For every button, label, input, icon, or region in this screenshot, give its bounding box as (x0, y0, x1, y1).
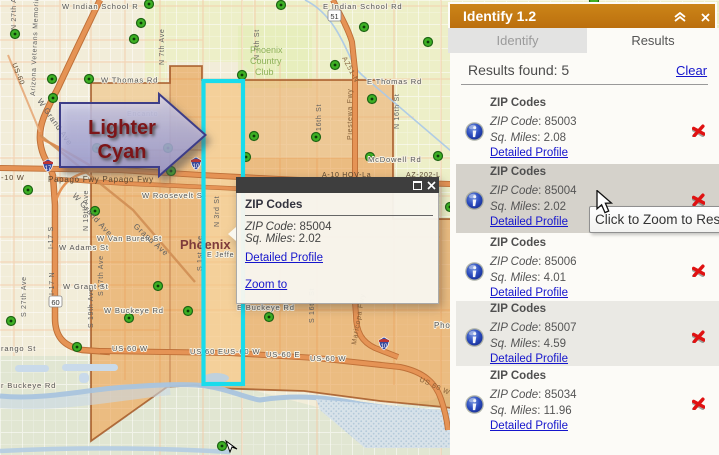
svg-text:US 60 W: US 60 W (112, 344, 148, 353)
svg-text:rango St: rango St (1, 344, 36, 353)
svg-text:Phoenix: Phoenix (180, 237, 231, 252)
svg-text:Club: Club (255, 67, 274, 77)
svg-text:US 60 EUS-60 W: US 60 EUS-60 W (190, 347, 260, 356)
svg-text:17: 17 (45, 166, 52, 172)
svg-text:W Thomas Rd: W Thomas Rd (101, 76, 158, 85)
svg-text:S 19th Ave: S 19th Ave (88, 287, 95, 328)
svg-text:60: 60 (51, 298, 59, 307)
svg-text:I-17 S: I-17 S (48, 226, 55, 249)
svg-text:US-60 W: US-60 W (310, 354, 346, 363)
svg-text:Papago Fwy Papago Fwy: Papago Fwy Papago Fwy (48, 175, 154, 184)
svg-text:N 27th Ave: N 27th Ave (11, 0, 18, 30)
svg-text:16th St: 16th St (316, 104, 323, 131)
svg-text:S 17th Ave: S 17th Ave (98, 255, 105, 296)
svg-text:Country: Country (250, 56, 282, 66)
svg-text:S 27th Ave: S 27th Ave (21, 276, 28, 317)
svg-text:Piestewa Fwy: Piestewa Fwy (347, 88, 354, 140)
svg-text:Lighter: Lighter (88, 117, 156, 139)
svg-text:N 3rd St: N 3rd St (214, 196, 221, 227)
svg-text:I-17 N: I-17 N (49, 272, 56, 295)
svg-text:W Indian School R: W Indian School R (62, 2, 139, 11)
svg-text:W Buckeye Rd: W Buckeye Rd (104, 306, 164, 315)
svg-text:-10 W: -10 W (1, 173, 25, 182)
svg-text:McDowell Rd: McDowell Rd (368, 155, 422, 164)
svg-text:10: 10 (193, 164, 200, 170)
svg-text:Phoenix: Phoenix (250, 45, 283, 55)
svg-text:51: 51 (330, 12, 338, 21)
svg-text:E Jeffe: E Jeffe (207, 252, 234, 259)
svg-text:E Thomas Rd: E Thomas Rd (367, 77, 422, 86)
svg-text:N 7th Ave: N 7th Ave (159, 28, 166, 65)
svg-text:10: 10 (381, 344, 388, 350)
svg-text:E Buckeye Rd: E Buckeye Rd (237, 303, 295, 312)
svg-text:Cyan: Cyan (98, 141, 147, 163)
svg-text:r Buckeye Rd: r Buckeye Rd (1, 381, 56, 390)
svg-text:W Adams St: W Adams St (59, 243, 109, 252)
svg-text:W Roosevelt St: W Roosevelt St (142, 191, 206, 200)
svg-text:N 16th St: N 16th St (394, 94, 401, 129)
svg-text:US-60 E: US-60 E (266, 350, 300, 359)
